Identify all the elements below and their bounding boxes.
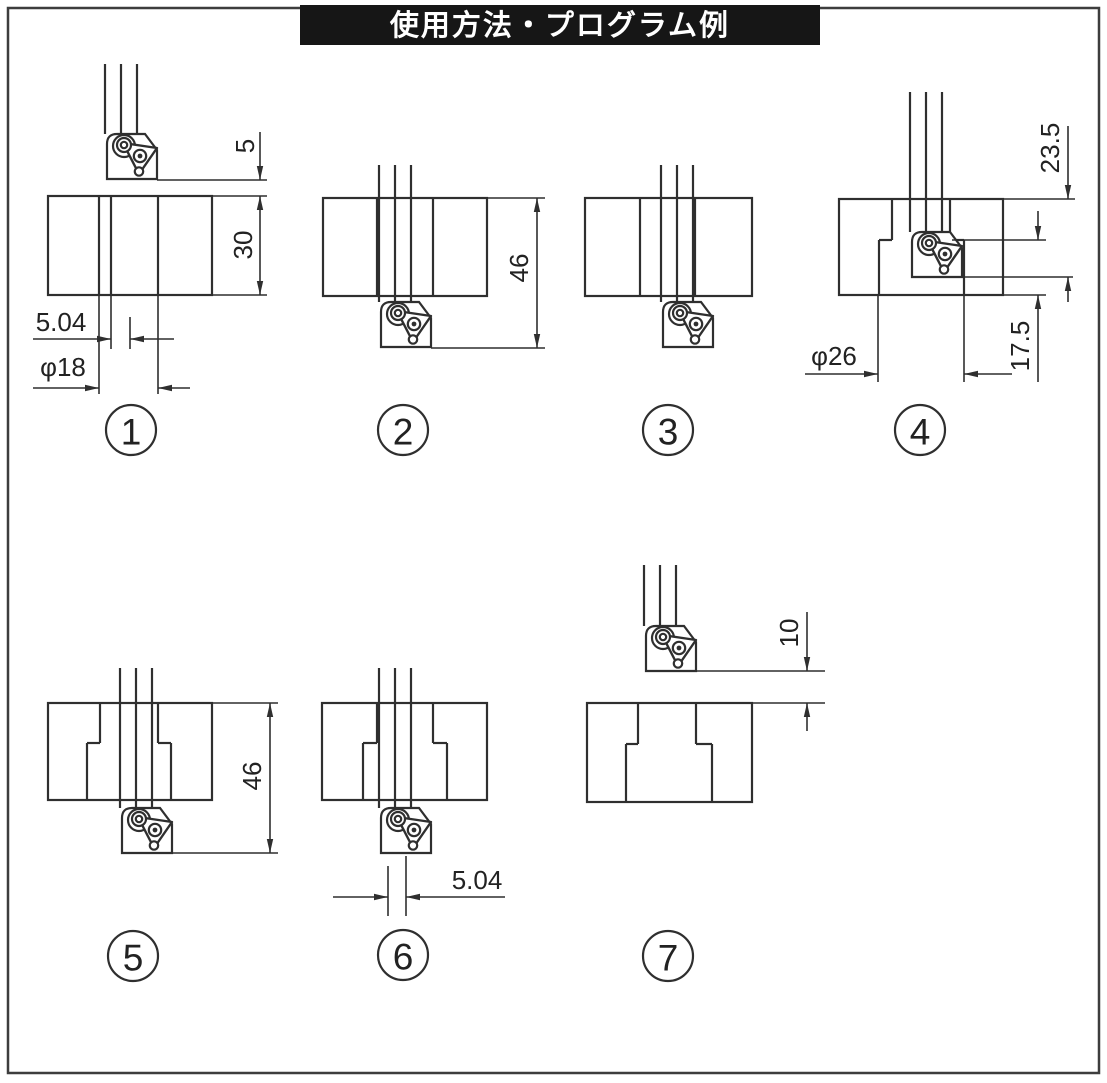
figure-7: 10 7 bbox=[587, 565, 825, 981]
figure-number-badge: 1 bbox=[106, 405, 156, 455]
figure-number-badge: 2 bbox=[378, 405, 428, 455]
workpiece bbox=[323, 198, 487, 296]
workpiece bbox=[587, 703, 752, 802]
tool-head bbox=[107, 134, 157, 179]
figure-number: 2 bbox=[393, 412, 414, 453]
dim-label-clearance-top: 5 bbox=[230, 139, 260, 153]
figure-3: 3 bbox=[585, 165, 752, 455]
figure-number: 5 bbox=[123, 938, 144, 979]
figure-number-badge: 5 bbox=[108, 931, 158, 981]
workpiece bbox=[48, 703, 212, 800]
figure-number: 7 bbox=[658, 938, 679, 979]
figure-number-badge: 7 bbox=[643, 931, 693, 981]
figure-5: 46 5 bbox=[48, 668, 278, 981]
dim-label-retract-clearance: 10 bbox=[774, 619, 804, 648]
dim-label-workpiece-height: 30 bbox=[228, 231, 258, 260]
grooving-tool bbox=[644, 565, 696, 671]
figure-6: 5.04 6 bbox=[322, 668, 505, 980]
figure-2: 46 2 bbox=[323, 165, 545, 455]
page-border bbox=[8, 8, 1099, 1073]
dim-label-groove-diameter: φ26 bbox=[811, 341, 857, 371]
figure-number: 1 bbox=[121, 412, 142, 453]
technical-diagram: 使用方法・プログラム例 bbox=[0, 0, 1107, 1083]
tool-head bbox=[381, 302, 431, 347]
tool-head bbox=[912, 232, 962, 277]
workpiece bbox=[585, 198, 752, 296]
dim-label-shoulder-height: 17.5 bbox=[1005, 321, 1035, 372]
tool-head bbox=[381, 808, 431, 853]
figure-4: 23.5 17.5 φ26 4 bbox=[805, 92, 1075, 455]
figure-1: 5 30 5.04 φ18 1 bbox=[33, 64, 267, 455]
grooving-tool bbox=[910, 92, 962, 277]
grooving-tool bbox=[105, 64, 157, 179]
figure-number: 6 bbox=[393, 937, 414, 978]
dim-label-offset: 5.04 bbox=[452, 865, 503, 895]
tool-head bbox=[122, 808, 172, 853]
workpiece bbox=[322, 703, 487, 800]
dim-label-bore-diameter: φ18 bbox=[40, 352, 86, 382]
title-banner: 使用方法・プログラム例 bbox=[300, 5, 820, 45]
workpiece bbox=[48, 196, 212, 295]
figure-number-badge: 4 bbox=[895, 405, 945, 455]
dim-label-plunge-depth: 46 bbox=[504, 254, 534, 283]
dim-label-offset: 5.04 bbox=[36, 307, 87, 337]
tool-head bbox=[663, 302, 713, 347]
dim-label-depth-to-tool: 23.5 bbox=[1035, 123, 1065, 174]
figure-number-badge: 6 bbox=[378, 930, 428, 980]
tool-head bbox=[646, 626, 696, 671]
catalog-page: 使用方法・プログラム例 bbox=[0, 0, 1107, 1083]
figure-number: 4 bbox=[910, 412, 931, 453]
page-title: 使用方法・プログラム例 bbox=[389, 8, 730, 42]
figure-number: 3 bbox=[658, 412, 679, 453]
figure-number-badge: 3 bbox=[643, 405, 693, 455]
dim-label-plunge-depth: 46 bbox=[237, 762, 267, 791]
